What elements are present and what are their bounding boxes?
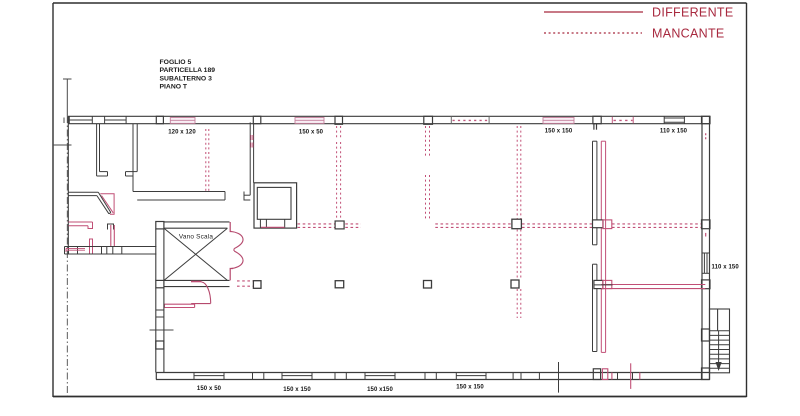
svg-text:MANCANTE: MANCANTE (652, 27, 725, 41)
svg-text:150 x 150: 150 x 150 (545, 129, 573, 135)
svg-text:DIFFERENTE: DIFFERENTE (652, 6, 733, 20)
svg-text:150 x 150: 150 x 150 (456, 385, 484, 391)
svg-text:110 x 150: 110 x 150 (712, 265, 740, 271)
svg-text:150 x150: 150 x150 (367, 387, 393, 393)
svg-text:PARTICELLA 189: PARTICELLA 189 (160, 67, 216, 74)
svg-text:150 x 50: 150 x 50 (299, 130, 324, 136)
svg-text:FOGLIO 5: FOGLIO 5 (160, 59, 192, 66)
svg-text:150 x 50: 150 x 50 (197, 386, 222, 392)
svg-text:SUBALTERNO 3: SUBALTERNO 3 (160, 75, 213, 82)
svg-text:150 x 150: 150 x 150 (283, 387, 311, 393)
svg-text:PIANO T: PIANO T (160, 84, 188, 91)
svg-text:120 x 120: 120 x 120 (168, 130, 196, 136)
svg-text:Vano Scala: Vano Scala (179, 234, 213, 241)
svg-text:110 x 150: 110 x 150 (660, 129, 688, 135)
